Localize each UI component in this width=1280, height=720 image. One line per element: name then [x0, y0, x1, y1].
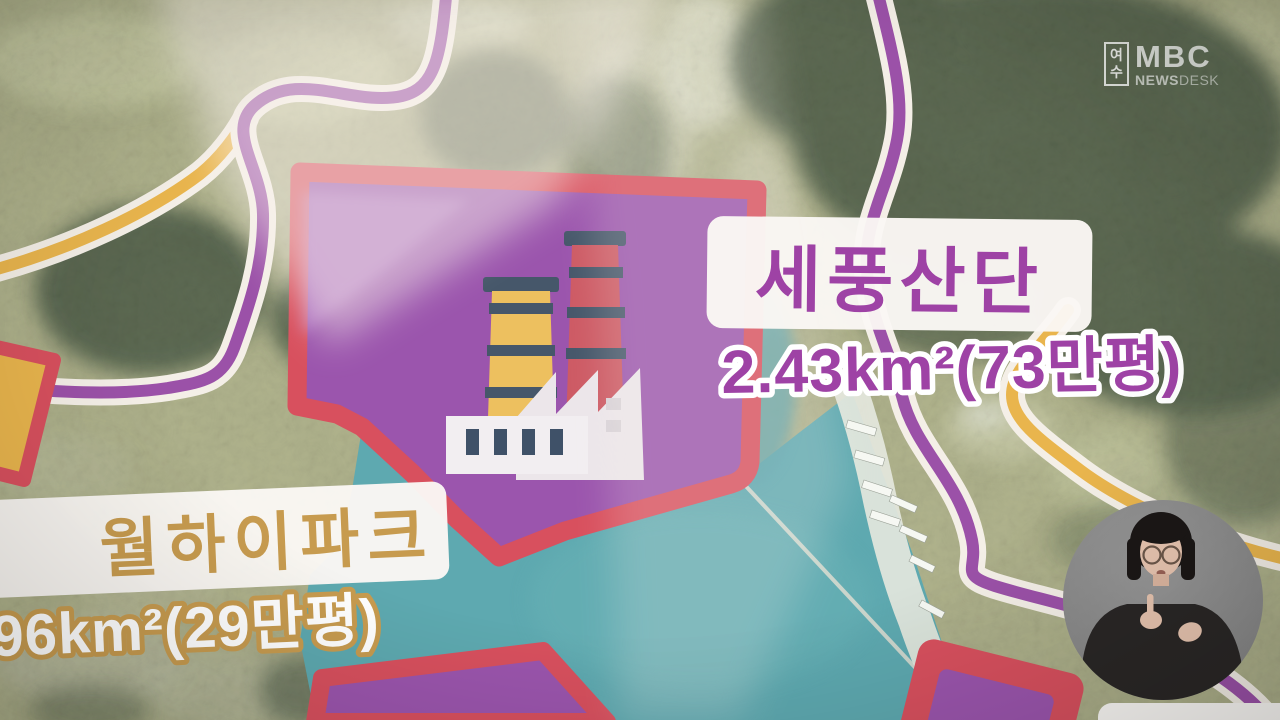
network-wordmark: MBC NEWSDESK — [1135, 42, 1219, 88]
station-name: 여수 — [1104, 42, 1129, 86]
broadcaster-logo: 여수 MBC NEWSDESK — [1104, 42, 1219, 88]
sign-language-interpreter — [1063, 500, 1263, 700]
program-name: NEWSDESK — [1135, 72, 1219, 88]
zone-sepung-area-text: 2.43km²(73만평) — [721, 330, 1183, 406]
corner-label-box — [1098, 703, 1280, 720]
network-name: MBC — [1135, 42, 1219, 71]
interpreter-figure — [1063, 500, 1263, 700]
zone-sepung-name: 세풍산단 — [754, 220, 1044, 328]
zone-wolha-name: 월하이파크 — [98, 485, 436, 591]
zone-sepung-label: 세풍산단 — [706, 216, 1092, 332]
broadcast-frame: 2.43km²(73만평) 96km²(29만평) 세풍산단 월하이파크 여수 … — [0, 0, 1280, 720]
